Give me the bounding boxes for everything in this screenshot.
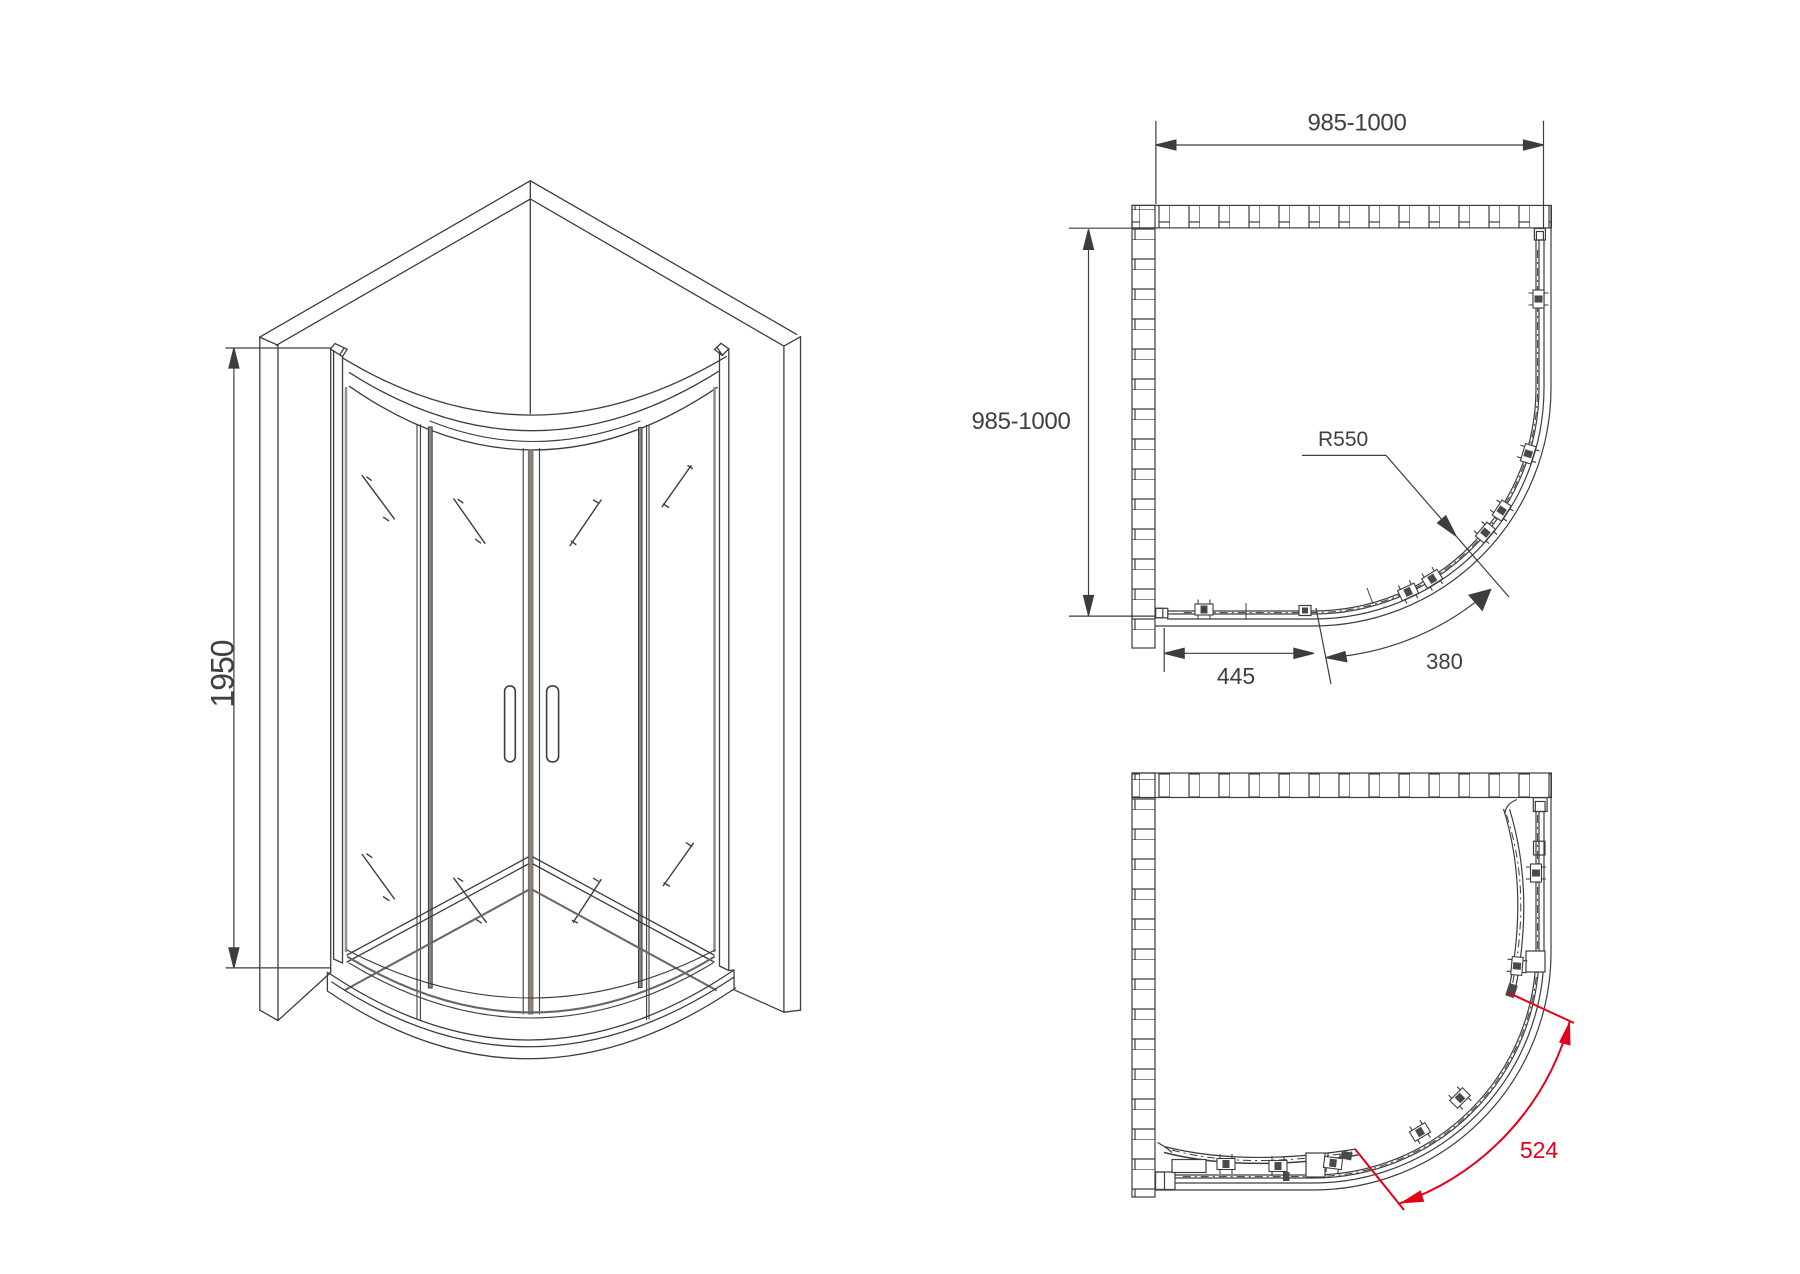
svg-text:524: 524 xyxy=(1520,1137,1559,1163)
svg-text:445: 445 xyxy=(1217,663,1255,689)
svg-text:985-1000: 985-1000 xyxy=(971,408,1070,435)
svg-text:985-1000: 985-1000 xyxy=(1307,110,1406,137)
svg-text:380: 380 xyxy=(1426,649,1463,674)
svg-text:1950: 1950 xyxy=(205,640,241,707)
svg-text:R550: R550 xyxy=(1318,428,1368,451)
